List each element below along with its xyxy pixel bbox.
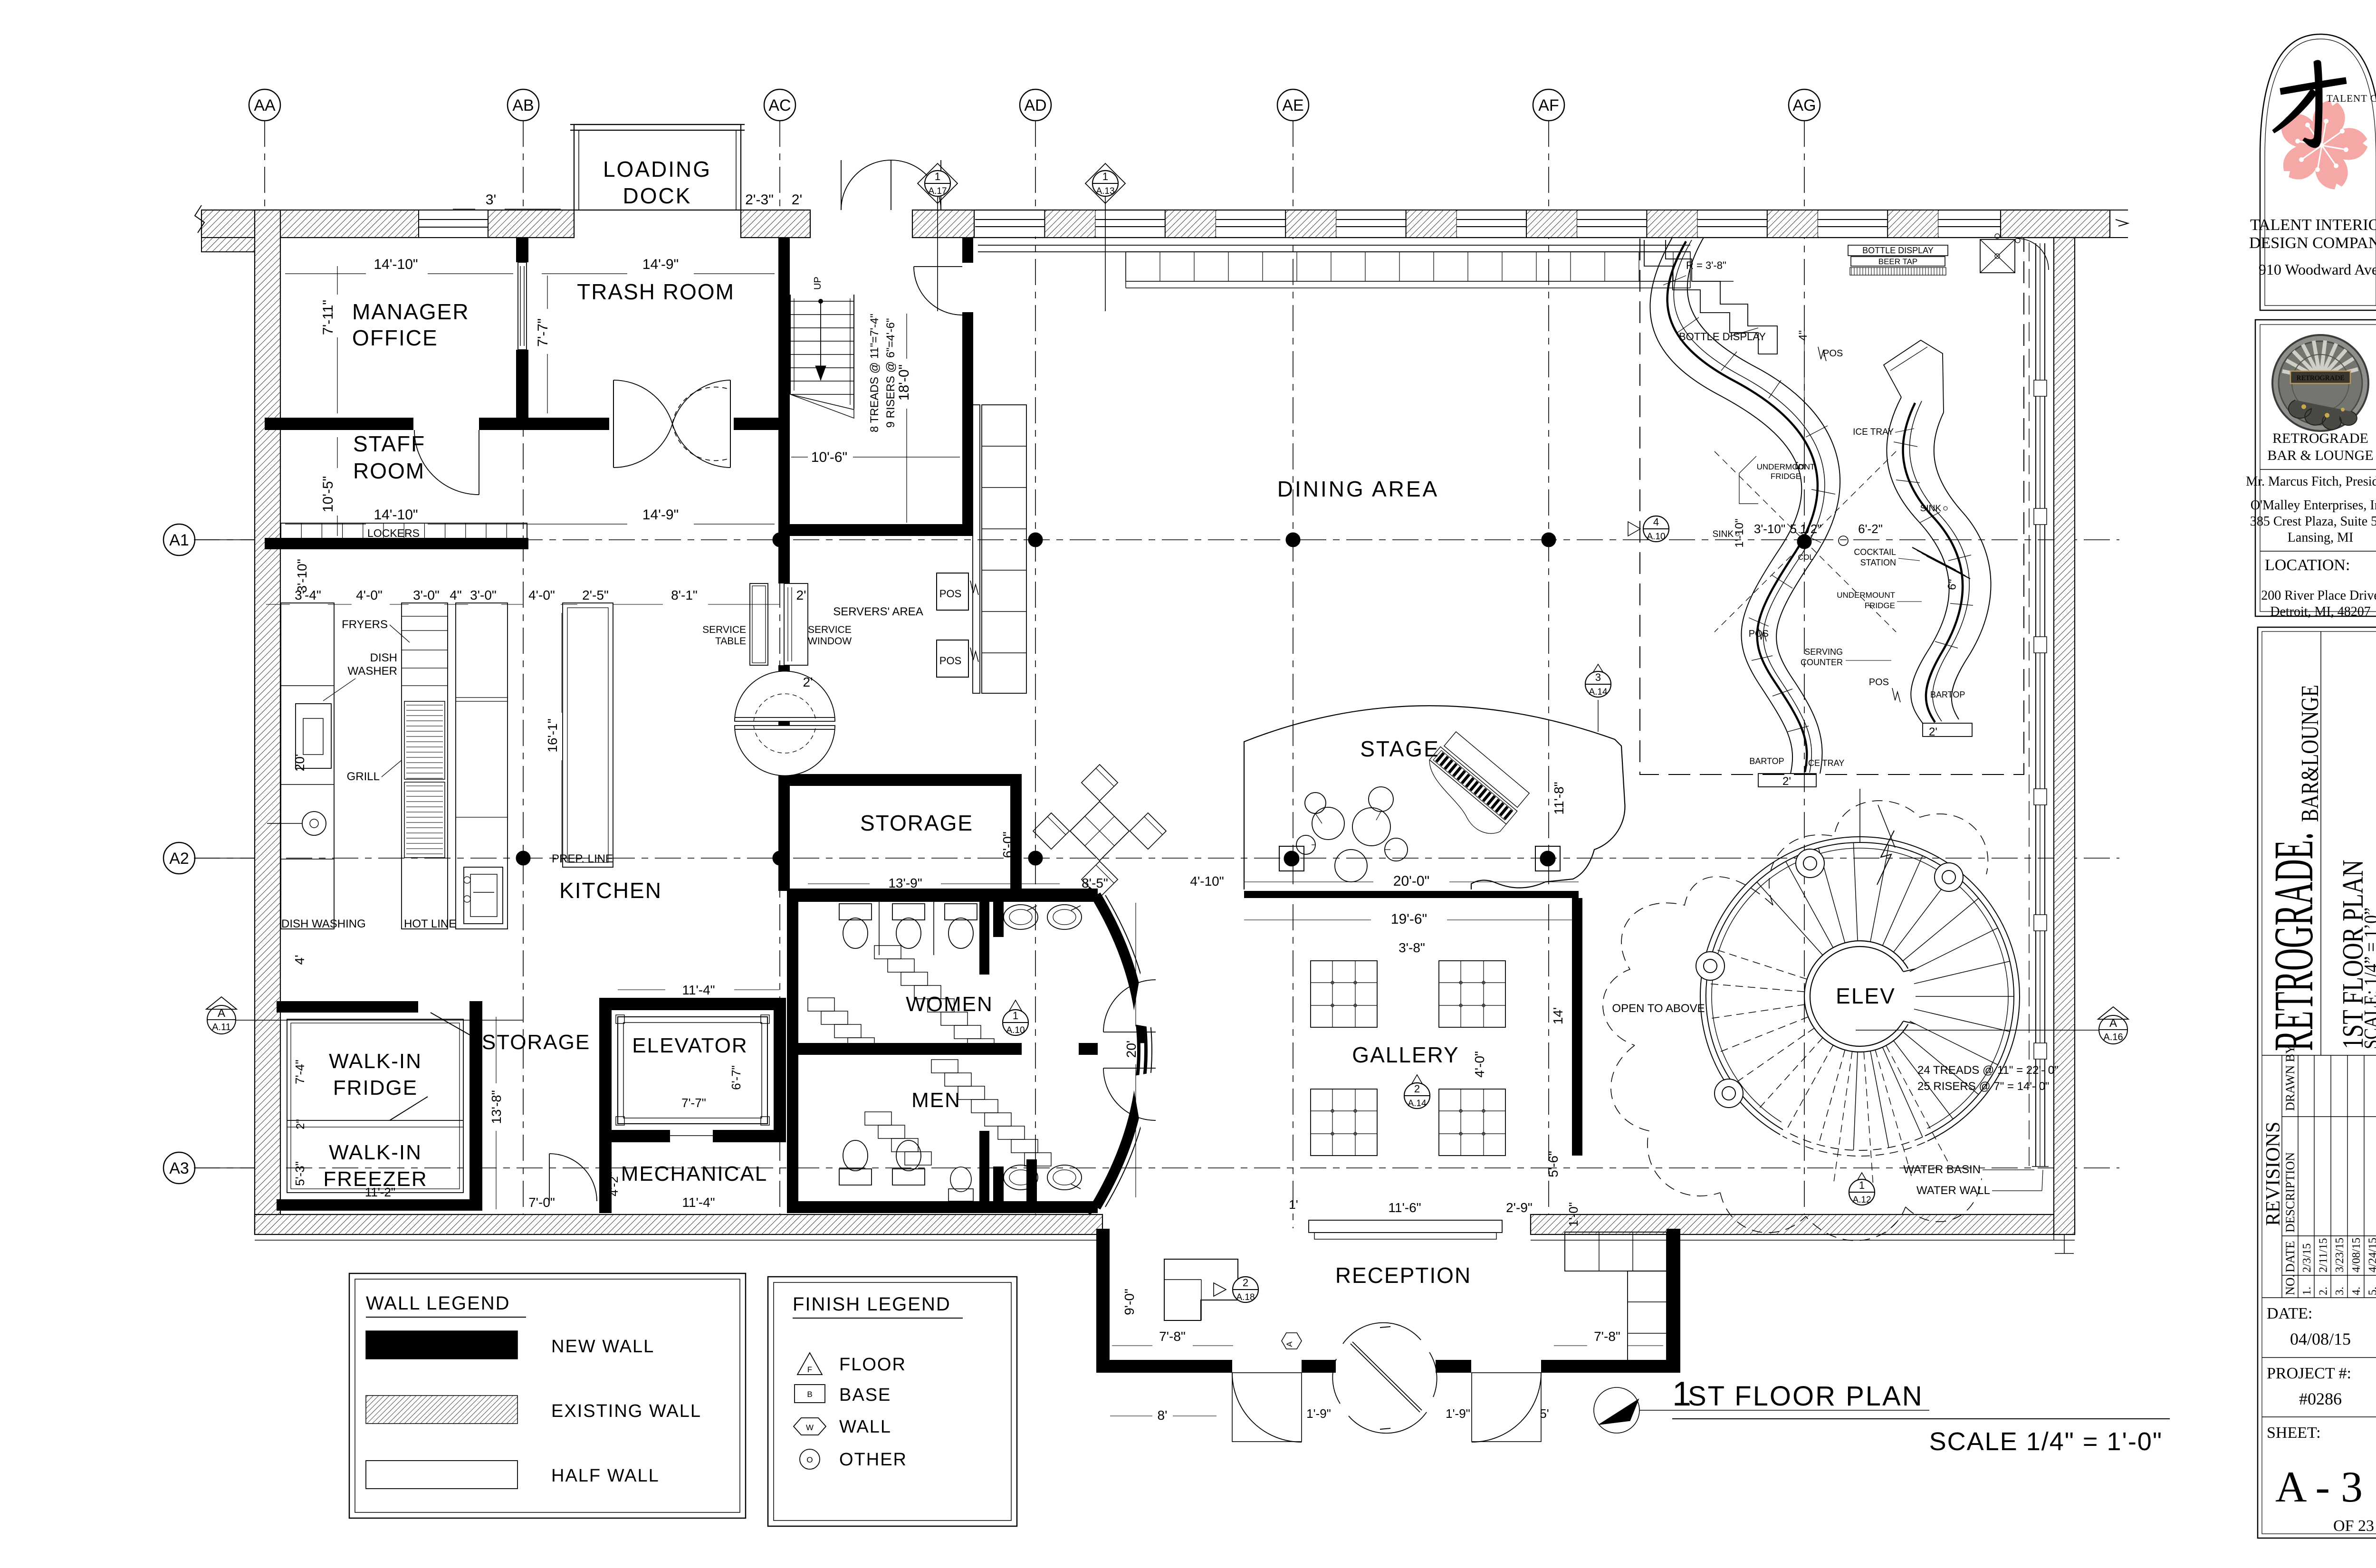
svg-text:11'-4": 11'-4" [682, 983, 715, 997]
svg-text:BAR&LOUNGE: BAR&LOUNGE [2297, 685, 2324, 822]
svg-text:BOTTLE DISPLAY: BOTTLE DISPLAY [1862, 246, 1934, 255]
svg-text:20': 20' [292, 754, 307, 772]
svg-text:2": 2" [294, 1119, 307, 1129]
svg-text:4'-0": 4'-0" [1472, 1051, 1487, 1078]
svg-text:GRILL: GRILL [347, 770, 380, 783]
svg-text:OTHER: OTHER [839, 1450, 907, 1470]
svg-text:910 Woodward Ave.: 910 Woodward Ave. [2259, 261, 2376, 278]
svg-text:4": 4" [1797, 330, 1810, 341]
svg-text:UP: UP [813, 277, 823, 290]
svg-text:O'Malley Enterprises, Inc.: O'Malley Enterprises, Inc. [2251, 498, 2376, 513]
svg-text:BASE: BASE [839, 1385, 891, 1405]
svg-text:WALK-IN: WALK-IN [329, 1141, 422, 1164]
svg-text:WALL LEGEND: WALL LEGEND [366, 1293, 510, 1314]
svg-text:SERVICE: SERVICE [808, 624, 852, 635]
svg-text:TABLE: TABLE [715, 636, 746, 647]
svg-text:9 RISERS @ 6"=4'-6": 9 RISERS @ 6"=4'-6" [884, 318, 897, 428]
svg-text:WALK-IN: WALK-IN [329, 1050, 422, 1073]
svg-text:8'-5": 8'-5" [1082, 876, 1108, 890]
svg-text:FRIDGE: FRIDGE [333, 1076, 418, 1100]
svg-text:5': 5' [1540, 1406, 1549, 1421]
svg-text:HOT LINE: HOT LINE [404, 918, 456, 930]
svg-text:LOCATION:: LOCATION: [2265, 556, 2350, 574]
svg-text:14'-9": 14'-9" [642, 507, 679, 523]
svg-text:UNDERMOUNT: UNDERMOUNT [1837, 591, 1895, 600]
svg-text:1: 1 [935, 171, 940, 182]
svg-text:5 1/2": 5 1/2" [1790, 522, 1821, 536]
svg-text:2': 2' [803, 675, 813, 689]
svg-text:1: 1 [1859, 1179, 1865, 1191]
svg-text:Lansing, MI: Lansing, MI [2288, 530, 2353, 545]
svg-text:1'-9": 1'-9" [1306, 1406, 1331, 1421]
svg-text:BOTTLE DISPLAY: BOTTLE DISPLAY [1679, 331, 1766, 343]
svg-text:13'-8": 13'-8" [489, 1090, 504, 1124]
svg-text:14'-9": 14'-9" [642, 257, 679, 272]
svg-text:FRIDGE: FRIDGE [1771, 472, 1801, 481]
svg-text:5'-6": 5'-6" [1546, 1151, 1561, 1177]
svg-text:2.: 2. [2318, 1287, 2330, 1295]
svg-text:19'-6": 19'-6" [1391, 911, 1427, 927]
svg-text:OFFICE: OFFICE [352, 325, 438, 350]
svg-text:8 TREADS @ 11"=7'-4": 8 TREADS @ 11"=7'-4" [868, 314, 881, 432]
svg-text:FLOOR: FLOOR [839, 1355, 906, 1375]
svg-text:A: A [218, 1007, 225, 1020]
svg-text:20': 20' [1124, 1041, 1139, 1058]
svg-text:A.16: A.16 [2103, 1032, 2123, 1042]
svg-text:#0286: #0286 [2299, 1389, 2342, 1408]
svg-text:18'-0": 18'-0" [896, 364, 912, 401]
svg-text:SINK: SINK [1920, 504, 1942, 514]
svg-text:AB: AB [512, 96, 534, 115]
svg-text:7'-0": 7'-0" [528, 1195, 555, 1210]
svg-text:PREP. LINE: PREP. LINE [552, 852, 613, 865]
svg-text:1'-10": 1'-10" [1733, 518, 1746, 547]
svg-text:SERVICE: SERVICE [702, 624, 746, 635]
svg-text:2'-9": 2'-9" [1506, 1200, 1533, 1215]
svg-text:3'-0": 3'-0" [413, 588, 440, 602]
svg-text:A1: A1 [169, 531, 189, 549]
svg-text:NO.: NO. [2283, 1274, 2297, 1295]
svg-text:2': 2' [796, 588, 806, 602]
svg-text:14'-10": 14'-10" [374, 507, 418, 523]
svg-text:AD: AD [1024, 96, 1046, 115]
svg-text:A3: A3 [169, 1159, 189, 1177]
svg-text:POS: POS [1823, 348, 1843, 359]
svg-text:16'-1": 16'-1" [545, 718, 560, 752]
svg-text:2': 2' [1929, 726, 1937, 738]
svg-text:5': 5' [1793, 461, 1806, 470]
svg-text:Mr. Marcus Fitch, President: Mr. Marcus Fitch, President [2246, 474, 2376, 489]
svg-text:5.: 5. [2366, 1287, 2376, 1295]
svg-text:SHEET:: SHEET: [2267, 1424, 2321, 1442]
svg-text:FINISH LEGEND: FINISH LEGEND [793, 1294, 951, 1315]
svg-text:OPEN TO ABOVE: OPEN TO ABOVE [1612, 1002, 1705, 1015]
svg-text:STATION: STATION [1860, 558, 1896, 567]
svg-text:3'-10": 3'-10" [1754, 522, 1785, 536]
svg-text:AA: AA [254, 96, 276, 115]
svg-text:4: 4 [1653, 516, 1659, 528]
svg-text:SERVING: SERVING [1804, 647, 1843, 657]
svg-text:AC: AC [768, 96, 791, 115]
svg-text:RETROGRADE: RETROGRADE [2297, 374, 2345, 382]
svg-text:WASHER: WASHER [348, 665, 397, 678]
svg-text:3'-10": 3'-10" [295, 559, 309, 593]
svg-text:4'-0": 4'-0" [356, 588, 383, 602]
svg-text:2'-5": 2'-5" [582, 588, 609, 602]
svg-text:STORAGE: STORAGE [860, 811, 973, 835]
svg-text:EXISTING WALL: EXISTING WALL [551, 1401, 701, 1421]
svg-text:4": 4" [450, 588, 462, 602]
svg-text:COCKTAIL: COCKTAIL [1854, 547, 1896, 557]
svg-text:DATE: DATE [2283, 1241, 2297, 1272]
svg-text:STAFF: STAFF [353, 431, 425, 456]
svg-text:O: O [806, 1455, 813, 1464]
svg-text:7'-7": 7'-7" [681, 1096, 706, 1110]
svg-text:A.11: A.11 [212, 1022, 231, 1033]
svg-text:6'-0": 6'-0" [1000, 832, 1015, 858]
svg-text:PROJECT #:: PROJECT #: [2267, 1365, 2351, 1382]
svg-text:10'-5": 10'-5" [320, 476, 336, 512]
svg-text:3': 3' [486, 192, 496, 208]
svg-text:A.12: A.12 [1852, 1195, 1871, 1205]
svg-text:A - 3: A - 3 [2275, 1463, 2363, 1511]
svg-text:8': 8' [1158, 1408, 1168, 1423]
svg-text:3'-0": 3'-0" [470, 588, 497, 602]
svg-text:TALENT INTERIOR: TALENT INTERIOR [2250, 216, 2376, 234]
svg-text:DISH: DISH [370, 651, 397, 664]
svg-text:200 River Place Drive: 200 River Place Drive [2261, 588, 2376, 603]
svg-text:7'-4": 7'-4" [293, 1060, 307, 1084]
svg-text:DATE:: DATE: [2267, 1305, 2312, 1322]
svg-text:2': 2' [792, 192, 802, 208]
svg-text:ICE TRAY: ICE TRAY [1806, 758, 1844, 768]
svg-text:WALL: WALL [839, 1417, 891, 1437]
svg-text:385 Crest Plaza, Suite 567: 385 Crest Plaza, Suite 567 [2250, 514, 2376, 529]
svg-text:TALENT CO.: TALENT CO. [2327, 93, 2376, 104]
svg-text:ICE TRAY: ICE TRAY [1853, 427, 1894, 437]
svg-text:7'-8": 7'-8" [1159, 1329, 1186, 1344]
svg-text:25 RISERS @ 7" = 14'- 0": 25 RISERS @ 7" = 14'- 0" [1917, 1080, 2049, 1093]
svg-text:2: 2 [1243, 1277, 1248, 1289]
svg-text:5'-3": 5'-3" [293, 1161, 307, 1186]
svg-text:REVISIONS: REVISIONS [2262, 1122, 2284, 1226]
svg-text:04/08/15: 04/08/15 [2290, 1329, 2351, 1348]
svg-text:4'-0": 4'-0" [528, 588, 555, 602]
svg-text:POS: POS [1869, 677, 1889, 688]
svg-text:A.18: A.18 [1236, 1292, 1255, 1302]
svg-text:COUNTER: COUNTER [1801, 658, 1843, 667]
svg-text:WOMEN: WOMEN [906, 993, 993, 1016]
svg-text:6'-2": 6'-2" [1858, 522, 1883, 536]
svg-text:11'-8": 11'-8" [1552, 782, 1566, 814]
svg-text:8'-1": 8'-1" [671, 588, 698, 602]
svg-text:1: 1 [1102, 171, 1108, 182]
svg-text:MANAGER: MANAGER [352, 299, 469, 324]
svg-text:OF 23: OF 23 [2333, 1517, 2374, 1535]
svg-text:SCALE 1/4" = 1'-0": SCALE 1/4" = 1'-0" [1929, 1427, 2163, 1456]
svg-text:BARTOP: BARTOP [1749, 756, 1784, 766]
svg-text:DOCK: DOCK [623, 183, 692, 208]
svg-text:POS: POS [939, 588, 961, 600]
svg-text:A.14: A.14 [1408, 1099, 1427, 1109]
svg-text:2/11/15: 2/11/15 [2318, 1238, 2330, 1272]
svg-text:NEW WALL: NEW WALL [551, 1337, 654, 1357]
svg-text:AE: AE [1282, 96, 1303, 115]
svg-text:A: A [1285, 1341, 1294, 1347]
svg-text:14'-10": 14'-10" [374, 257, 418, 272]
svg-text:BAR & LOUNGE: BAR & LOUNGE [2267, 448, 2373, 463]
svg-text:B: B [807, 1390, 812, 1399]
svg-text:9'-0": 9'-0" [1122, 1289, 1137, 1315]
svg-text:DISH WASHING: DISH WASHING [281, 918, 366, 930]
svg-text:1'-0": 1'-0" [1566, 1202, 1581, 1227]
svg-text:DINING AREA: DINING AREA [1277, 477, 1439, 501]
svg-text:2': 2' [1782, 775, 1791, 788]
svg-text:11'-4": 11'-4" [682, 1195, 715, 1210]
svg-text:13'-9": 13'-9" [888, 876, 922, 890]
svg-text:SCALE: 1/4” = 1’0”: SCALE: 1/4” = 1’0” [2361, 908, 2376, 1049]
svg-text:AG: AG [1792, 96, 1816, 115]
svg-text:1: 1 [1013, 1010, 1018, 1022]
svg-text:ELEV: ELEV [1836, 984, 1896, 1008]
svg-text:20'-0": 20'-0" [1393, 873, 1429, 889]
svg-text:WATER BASIN: WATER BASIN [1903, 1163, 1981, 1176]
svg-text:14': 14' [1551, 1007, 1565, 1025]
svg-text:7'-8": 7'-8" [1594, 1329, 1620, 1344]
svg-text:3: 3 [1595, 671, 1601, 683]
svg-text:STAGE: STAGE [1360, 736, 1440, 761]
svg-text:11'-2": 11'-2" [365, 1185, 395, 1199]
svg-text:11'-6": 11'-6" [1388, 1200, 1421, 1215]
svg-text:3/23/15: 3/23/15 [2334, 1238, 2346, 1272]
svg-text:HALF WALL: HALF WALL [551, 1466, 660, 1486]
svg-text:SERVERS' AREA: SERVERS' AREA [833, 605, 923, 618]
svg-text:BEER TAP: BEER TAP [1878, 257, 1918, 266]
svg-text:4/24/15: 4/24/15 [2366, 1238, 2376, 1272]
svg-text:4.: 4. [2350, 1287, 2363, 1295]
svg-text:SINK: SINK [1713, 529, 1734, 539]
svg-text:ROOM: ROOM [353, 459, 425, 483]
svg-text:POS: POS [939, 655, 961, 667]
svg-text:7'-7": 7'-7" [535, 318, 551, 347]
svg-text:MECHANICAL: MECHANICAL [621, 1162, 768, 1186]
svg-text:A.14: A.14 [1589, 687, 1608, 697]
svg-text:COL: COL [1798, 554, 1814, 562]
svg-text:STORAGE: STORAGE [482, 1031, 590, 1054]
svg-text:RECEPTION: RECEPTION [1335, 1263, 1471, 1288]
svg-text:GALLERY: GALLERY [1352, 1042, 1459, 1067]
svg-text:ELEVATOR: ELEVATOR [632, 1034, 747, 1057]
svg-text:RETROGRADE: RETROGRADE [2272, 430, 2368, 446]
svg-text:Detroit, MI, 48207: Detroit, MI, 48207 [2270, 604, 2371, 619]
svg-text:1.: 1. [2301, 1287, 2313, 1295]
svg-text:A.17: A.17 [928, 186, 947, 196]
svg-text:2/3/15: 2/3/15 [2301, 1243, 2313, 1272]
svg-text:MEN: MEN [911, 1089, 961, 1112]
svg-text:BARTOP: BARTOP [1930, 690, 1965, 699]
svg-text:3.: 3. [2334, 1287, 2346, 1295]
svg-text:ST FLOOR PLAN: ST FLOOR PLAN [1688, 1381, 1924, 1412]
svg-text:1'-9": 1'-9" [1446, 1406, 1470, 1421]
svg-text:4'-2": 4'-2" [606, 1172, 621, 1196]
svg-text:WINDOW: WINDOW [808, 636, 852, 647]
svg-text:6": 6" [1945, 579, 1959, 591]
svg-text:LOCKERS: LOCKERS [367, 527, 420, 539]
svg-text:AF: AF [1538, 96, 1559, 115]
svg-text:4': 4' [292, 955, 307, 965]
svg-text:10'-6": 10'-6" [811, 449, 847, 465]
svg-text:2: 2 [1414, 1083, 1420, 1095]
svg-text:A2: A2 [169, 850, 189, 868]
svg-text:24 TREADS @ 11" = 22'- 0": 24 TREADS @ 11" = 22'- 0" [1917, 1064, 2059, 1077]
svg-text:DRAWN BY: DRAWN BY [2283, 1045, 2297, 1111]
svg-text:A.10: A.10 [1006, 1025, 1025, 1035]
svg-text:4/08/15: 4/08/15 [2350, 1238, 2363, 1272]
svg-text:TRASH ROOM: TRASH ROOM [577, 279, 735, 304]
svg-text:FRYERS: FRYERS [342, 618, 388, 631]
svg-text:A.13: A.13 [1096, 186, 1114, 196]
svg-text:2'-3": 2'-3" [745, 192, 774, 208]
svg-text:A: A [2109, 1017, 2117, 1030]
svg-text:W: W [806, 1423, 814, 1432]
svg-text:F: F [807, 1365, 812, 1374]
svg-text:4'-10": 4'-10" [1190, 874, 1224, 889]
svg-text:3'-8": 3'-8" [1399, 940, 1425, 955]
svg-text:1': 1' [1289, 1197, 1298, 1212]
svg-text:6'-7": 6'-7" [729, 1065, 743, 1090]
svg-text:DESIGN COMPANY: DESIGN COMPANY [2249, 234, 2376, 252]
svg-text:A.10: A.10 [1647, 532, 1665, 542]
svg-text:LOADING: LOADING [603, 157, 711, 182]
svg-text:DESCRIPTION: DESCRIPTION [2283, 1152, 2297, 1233]
svg-text:7'-11": 7'-11" [320, 300, 336, 335]
svg-text:KITCHEN: KITCHEN [559, 878, 662, 903]
svg-text:RETROGRADE.: RETROGRADE. [2262, 832, 2325, 1051]
